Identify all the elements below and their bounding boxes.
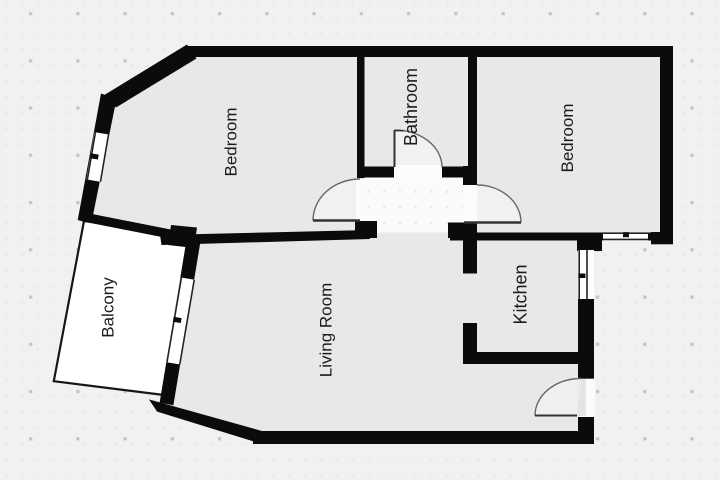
svg-text:Living Room: Living Room [316,283,335,378]
svg-text:Bedroom: Bedroom [558,104,577,173]
svg-text:Bedroom: Bedroom [221,108,240,177]
svg-text:Kitchen: Kitchen [510,264,530,324]
svg-text:Bathroom: Bathroom [401,68,421,146]
svg-text:Balcony: Balcony [98,277,117,338]
